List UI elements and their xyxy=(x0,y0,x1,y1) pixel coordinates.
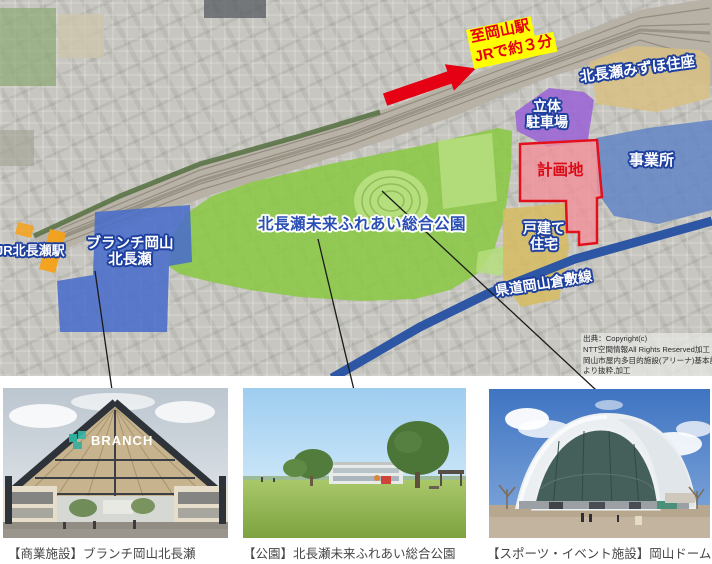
credit-line3: 岡山市屋内多目的施設(アリーナ)基本計画 xyxy=(583,356,712,367)
parking-label-line1: 立体 xyxy=(510,99,584,115)
houses-label-line2: 住宅 xyxy=(514,237,574,253)
photo-park xyxy=(243,388,466,538)
map-overlay-graphics xyxy=(0,0,712,376)
branch-label-line2: 北長瀬 xyxy=(80,252,180,268)
houses-label: 戸建て 住宅 xyxy=(514,221,574,252)
field-patch xyxy=(58,14,104,58)
factory-roof xyxy=(204,0,266,18)
photo-dome-art xyxy=(489,389,710,538)
park-label: 北長瀬未来ふれあい総合公園 xyxy=(258,216,466,233)
office-label: 事業所 xyxy=(629,153,674,170)
photo-park-art xyxy=(243,388,466,538)
plan-site-label: 計画地 xyxy=(537,162,584,179)
caption-branch: 【商業施設】ブランチ岡山北長瀬 xyxy=(8,543,196,562)
site-map: 至岡山駅 JRで約３分 JR北長瀬駅 ブランチ岡山 北長瀬 北長瀬未来ふれあい総… xyxy=(0,0,712,376)
station-label: JR北長瀬駅 xyxy=(0,244,65,259)
parking-label: 立体 駐車場 xyxy=(510,99,584,130)
caption-park: 【公園】北長瀬未来ふれあい総合公園 xyxy=(243,543,456,562)
field-patch xyxy=(0,130,34,166)
branch-label-line1: ブランチ岡山 xyxy=(80,236,180,252)
field-patch xyxy=(0,8,56,86)
credit-line2: NTT空間情報All Rights Reserved加工 xyxy=(583,345,712,356)
parking-label-line2: 駐車場 xyxy=(510,115,584,131)
credit-line1: 出典：Copyright(c) xyxy=(583,334,712,345)
station-area-small xyxy=(15,222,34,238)
page: 至岡山駅 JRで約３分 JR北長瀬駅 ブランチ岡山 北長瀬 北長瀬未来ふれあい総… xyxy=(0,0,712,564)
houses-label-line1: 戸建て xyxy=(514,221,574,237)
caption-dome: 【スポーツ・イベント施設】岡山ドーム xyxy=(487,543,711,562)
branch-label: ブランチ岡山 北長瀬 xyxy=(80,236,180,268)
photo-branch: BRANCH xyxy=(3,388,228,538)
credit-line4: より抜粋,加工 xyxy=(583,366,712,376)
photo-branch-art: BRANCH xyxy=(3,388,228,538)
branch-sign-text: BRANCH xyxy=(91,433,153,448)
sports-field xyxy=(438,133,497,209)
copyright-credit: 出典：Copyright(c) NTT空間情報All Rights Reserv… xyxy=(581,333,712,376)
office-area xyxy=(596,120,712,224)
photo-dome xyxy=(489,389,710,538)
